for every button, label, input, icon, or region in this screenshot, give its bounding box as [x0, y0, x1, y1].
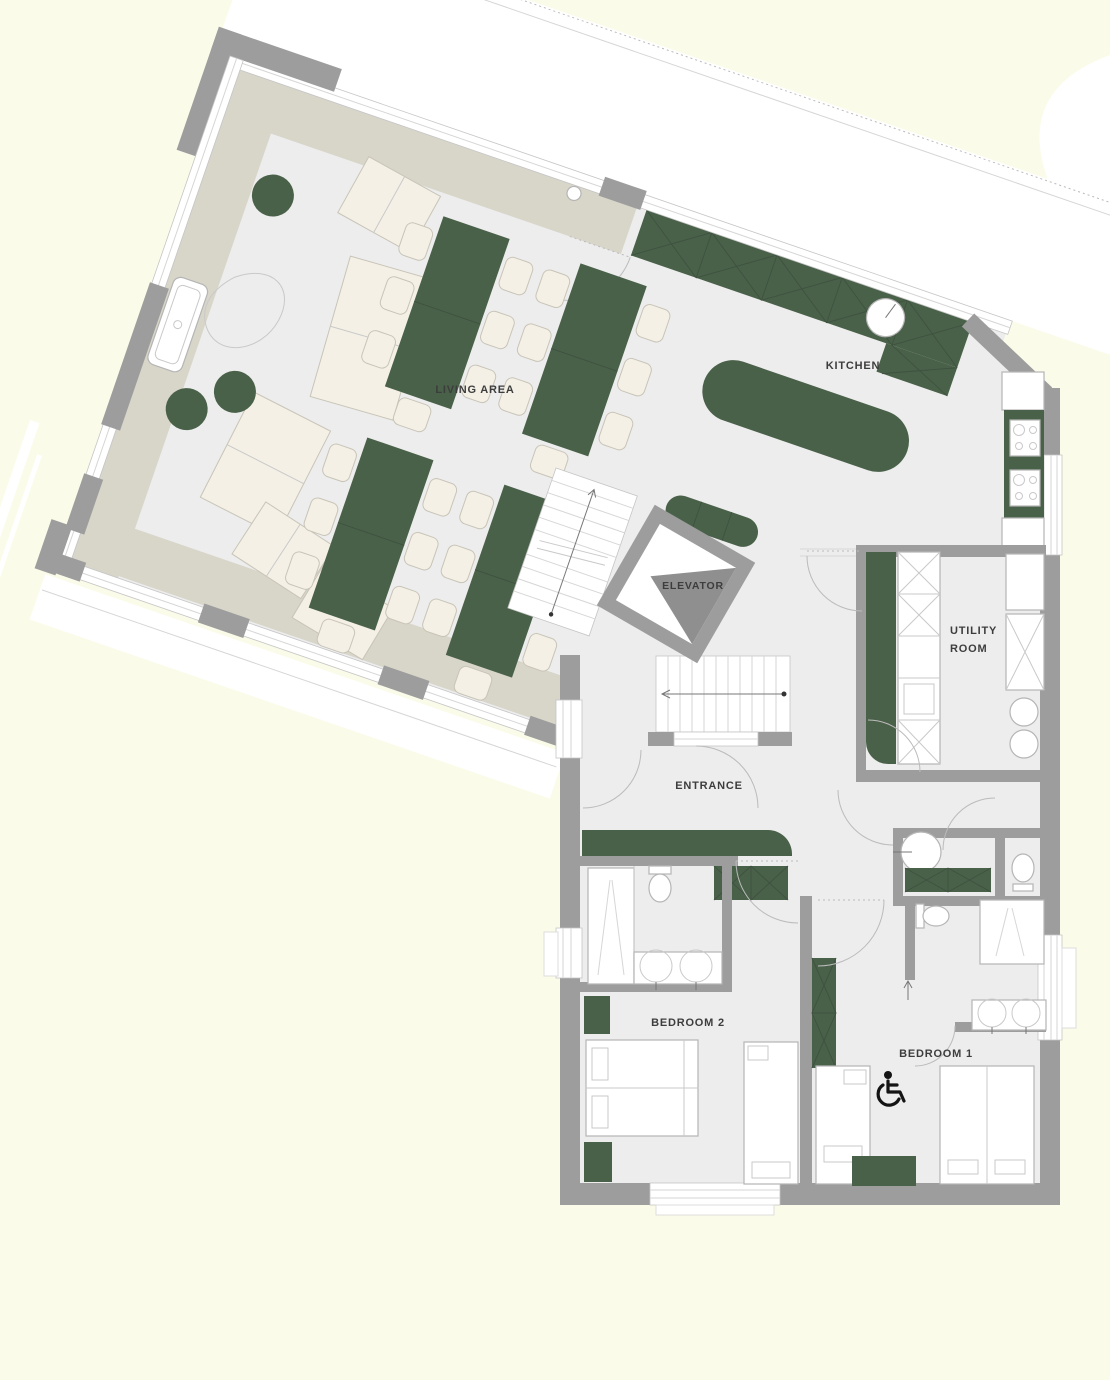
nightstand-green — [584, 1142, 612, 1182]
cooktop-icon — [1010, 420, 1040, 456]
hall-sideboard — [582, 830, 792, 856]
wall — [648, 732, 674, 746]
cooktop-icon — [1010, 470, 1040, 506]
wall — [995, 828, 1005, 904]
wall — [758, 732, 792, 746]
wall — [905, 896, 915, 980]
wardrobe-green — [812, 958, 836, 1068]
utility-closets — [898, 552, 940, 764]
bedroom-2-label: BEDROOM 2 — [651, 1017, 725, 1029]
wall — [722, 856, 732, 986]
utility-room-label-line1: UTILITY — [950, 625, 997, 637]
window — [674, 732, 758, 746]
dryer-icon — [1010, 730, 1038, 758]
bed-single — [744, 1042, 798, 1184]
entrance-label: ENTRANCE — [675, 780, 743, 792]
floorplan-page: LIVING AREA KITCHEN ELEVATOR UTILITY ROO… — [0, 0, 1110, 1380]
cabinet — [1002, 372, 1044, 410]
window — [556, 700, 582, 758]
kitchen-label: KITCHEN — [826, 360, 881, 372]
shower — [980, 900, 1044, 964]
utility-room-label-line2: ROOM — [950, 643, 987, 655]
bed-double — [940, 1066, 1034, 1184]
vanity-sinks — [972, 999, 1046, 1034]
wall — [800, 896, 812, 1192]
nightstand-green — [584, 996, 610, 1034]
living-area-label: LIVING AREA — [435, 384, 514, 396]
bedroom-1-label: BEDROOM 1 — [899, 1048, 973, 1060]
stairs-lower — [648, 656, 792, 746]
utility-closets-right — [1006, 554, 1044, 690]
toilet-icon — [1012, 854, 1034, 891]
wall — [893, 828, 903, 904]
window — [650, 1183, 780, 1215]
toilet-icon — [649, 866, 671, 902]
shower — [588, 868, 634, 984]
wall — [578, 856, 738, 866]
toilet-icon — [916, 904, 949, 928]
wall — [856, 552, 866, 770]
cabinet-green — [905, 868, 991, 892]
bed-double — [586, 1040, 698, 1136]
vanity-sinks — [634, 950, 722, 990]
floorplan-canvas: LIVING AREA KITCHEN ELEVATOR UTILITY ROO… — [0, 0, 1110, 1380]
utility-counter — [866, 552, 896, 764]
bench-green — [852, 1156, 916, 1186]
elevator-label: ELEVATOR — [662, 580, 724, 592]
wall — [856, 770, 1046, 782]
kitchen-appliances — [1002, 372, 1044, 552]
window — [544, 928, 582, 978]
washer-icon — [1010, 698, 1038, 726]
